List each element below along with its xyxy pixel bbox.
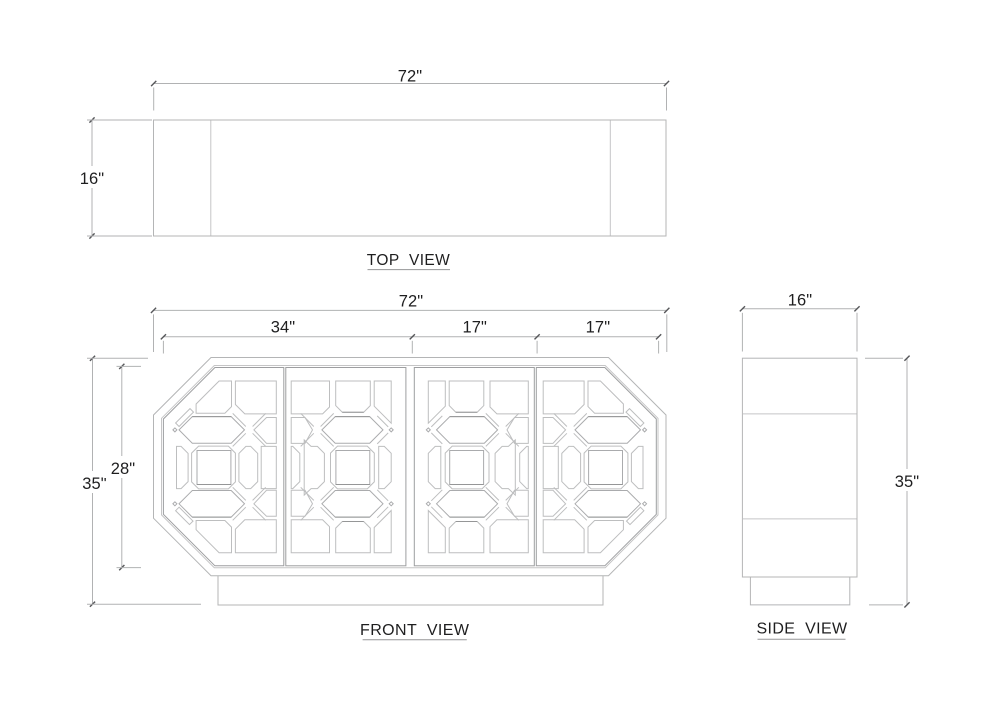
svg-text:FRONT VIEW: FRONT VIEW bbox=[360, 622, 470, 639]
svg-text:72": 72" bbox=[398, 67, 423, 85]
svg-text:17": 17" bbox=[462, 319, 487, 337]
svg-text:34": 34" bbox=[271, 319, 296, 337]
svg-text:28": 28" bbox=[111, 460, 136, 478]
svg-text:72": 72" bbox=[399, 293, 424, 311]
svg-text:35": 35" bbox=[895, 473, 920, 491]
svg-text:16": 16" bbox=[80, 170, 105, 188]
svg-text:SIDE VIEW: SIDE VIEW bbox=[756, 621, 848, 638]
svg-text:16": 16" bbox=[788, 291, 813, 309]
svg-text:17": 17" bbox=[586, 319, 611, 337]
svg-text:TOP VIEW: TOP VIEW bbox=[367, 252, 450, 269]
